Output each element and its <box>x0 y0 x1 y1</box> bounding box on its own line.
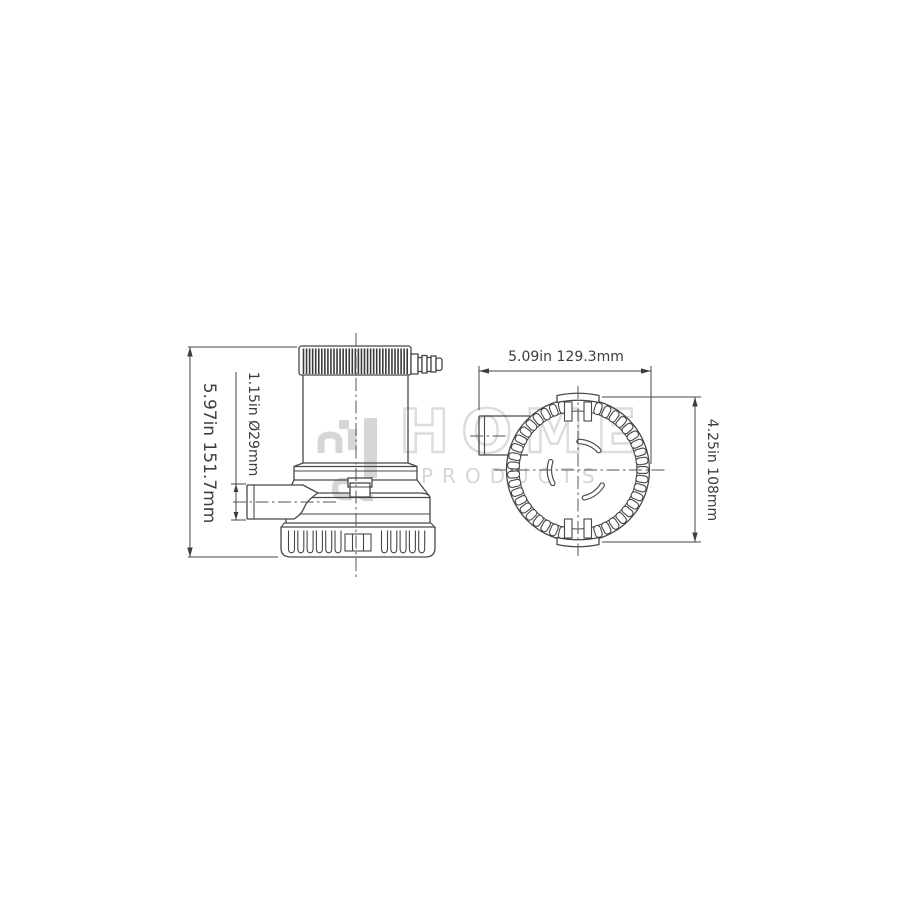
strainer-tooth <box>633 483 646 493</box>
skirt-slot <box>326 531 332 553</box>
dimension-text-strainer-diameter: 4.25in 108mm <box>704 419 720 521</box>
strainer-tooth <box>507 471 519 479</box>
logo-arch-shape <box>321 435 339 453</box>
dimension-text-outlet-diameter: 1.15in Ø29mm <box>245 372 261 477</box>
strainer-tooth <box>636 475 649 483</box>
top-cap <box>299 346 411 375</box>
arrowhead-down <box>692 533 697 543</box>
dimension-text-overall-height: 5.97in 151.7mm <box>199 383 219 524</box>
skirt-slot <box>289 531 295 553</box>
arrowhead-down <box>187 548 192 558</box>
mounting-clip <box>348 478 372 497</box>
skirt-center-tab <box>345 534 371 551</box>
arrowhead-down <box>234 512 239 520</box>
skirt-slot <box>307 531 313 553</box>
skirt-slot <box>316 531 322 553</box>
skirt-slot <box>382 531 388 553</box>
arrowhead-up <box>187 347 192 357</box>
arrowhead-up <box>692 397 697 407</box>
skirt-slot <box>400 531 406 553</box>
arrowhead-left <box>479 368 489 373</box>
technical-drawing-canvas: HOME PRODUCTS <box>0 0 900 900</box>
dimension-text-overall-width: 5.09in 129.3mm <box>508 349 624 365</box>
strainer-tooth <box>507 462 519 470</box>
arrowhead-right <box>641 368 651 373</box>
skirt-slot <box>419 531 425 553</box>
logo-tall-bar-shape <box>364 418 377 478</box>
skirt-slot <box>298 531 304 553</box>
cap-ribs <box>304 349 408 375</box>
logo-block-shape <box>339 420 349 429</box>
hose-barb-fitting <box>411 354 442 374</box>
strainer-tooth <box>636 457 649 465</box>
skirt-slot <box>409 531 415 553</box>
skirt-slot <box>391 531 397 553</box>
dimension-overall-height: 5.97in 151.7mm <box>187 347 297 557</box>
arrowhead-up <box>234 484 239 492</box>
skirt-slot <box>335 531 341 553</box>
strainer-skirt <box>281 527 435 557</box>
